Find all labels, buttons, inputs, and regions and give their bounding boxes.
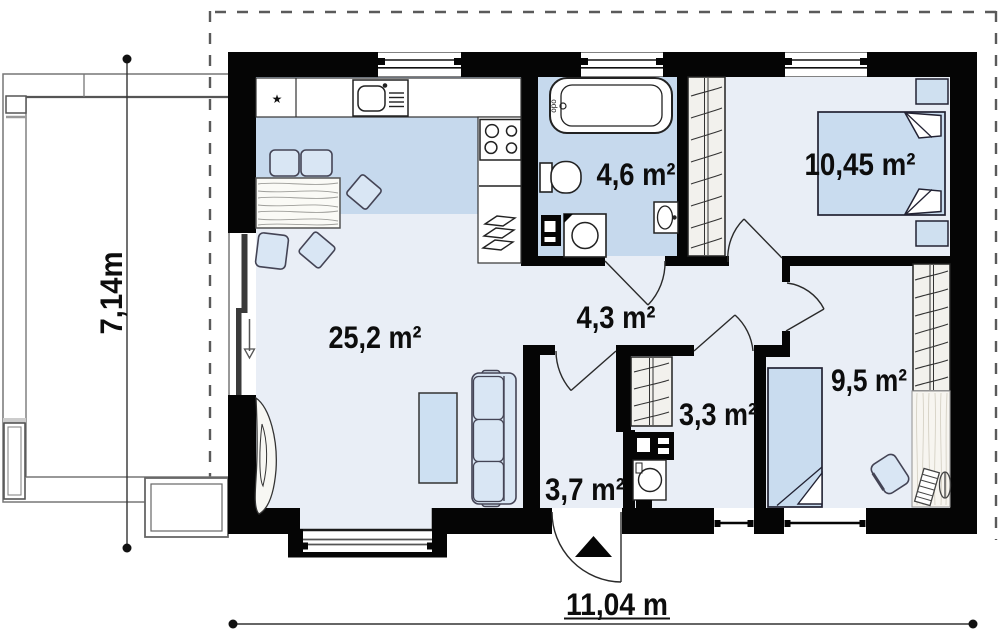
svg-text:opo: opo bbox=[549, 99, 558, 113]
svg-text:3,7 m²: 3,7 m² bbox=[545, 471, 625, 507]
svg-text:4,3 m²: 4,3 m² bbox=[577, 299, 656, 335]
svg-text:★: ★ bbox=[272, 92, 283, 106]
svg-text:10,45 m²: 10,45 m² bbox=[805, 146, 916, 182]
svg-text:4,6 m²: 4,6 m² bbox=[597, 156, 676, 192]
svg-text:25,2 m²: 25,2 m² bbox=[329, 319, 422, 355]
svg-text:7,14m: 7,14m bbox=[93, 252, 129, 335]
svg-text:11,04 m: 11,04 m bbox=[566, 586, 668, 622]
svg-text:3,3 m²: 3,3 m² bbox=[679, 396, 757, 432]
svg-text:9,5 m²: 9,5 m² bbox=[831, 362, 907, 398]
